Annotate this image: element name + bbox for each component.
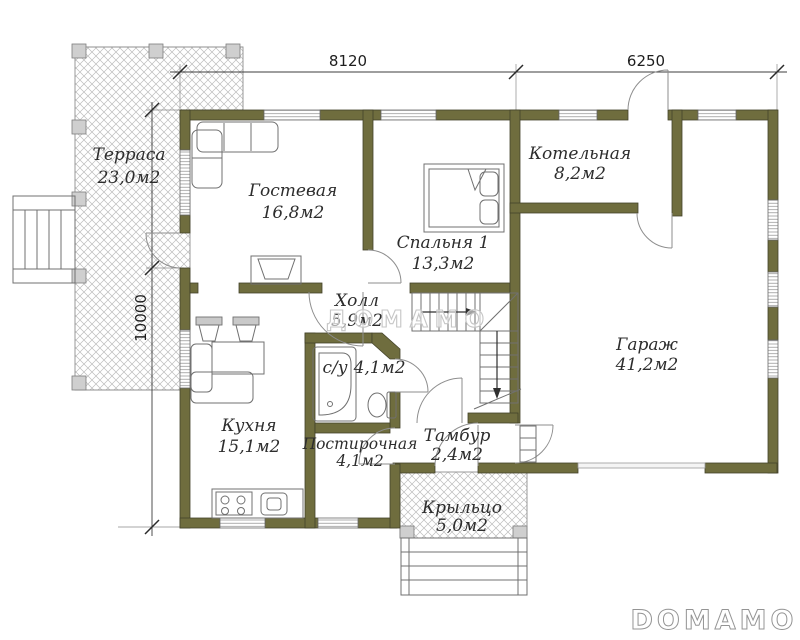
terrace-area: 23,0м2 [97,168,161,188]
garage-name: Гараж [615,335,678,355]
porch-name: Крыльцо [421,498,502,518]
porch-area: 5,0м2 [436,516,488,536]
laundry-name: Постирочная [302,435,418,453]
living-area: 16,8м2 [262,203,325,223]
vestibule-area: 2,4м2 [430,445,483,465]
dim-top-left: 8120 [329,52,367,70]
garage-area: 41,2м2 [615,355,679,375]
bedroom-area: 13,3м2 [412,254,475,274]
terrace-name: Терраса [93,145,166,165]
dim-top-right: 6250 [627,52,665,70]
brand-logo: DOMAMO [631,605,798,636]
vestibule-name: Тамбур [424,426,491,446]
garage-gate [578,463,705,468]
watermark-text: ДОМАМО [326,307,491,333]
bathroom-name: с/у [322,358,347,378]
bathroom-area: 4,1м2 [353,358,406,378]
kitchen-name: Кухня [220,416,276,436]
kitchen-area: 15,1м2 [218,437,281,457]
laundry-area: 4,1м2 [335,452,383,470]
bedroom-name: Спальня 1 [397,233,490,253]
boiler-area: 8,2м2 [554,164,606,184]
dim-left: 10000 [132,294,150,342]
floor-plan: Терраса 23,0м2 Гостевая 16,8м2 Спальня 1… [0,0,800,640]
boiler-name: Котельная [528,144,631,164]
bathroom-label: с/у4,1м2 [322,358,405,378]
living-name: Гостевая [248,181,337,201]
